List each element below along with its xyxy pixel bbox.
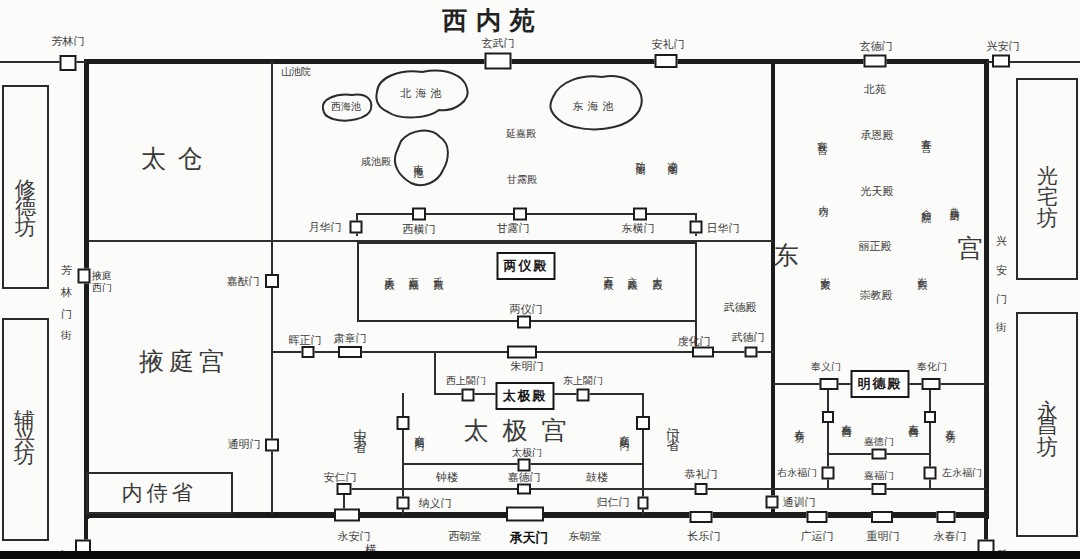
label-wudedian: 武德殿 <box>724 302 757 313</box>
wall-east-palace-west <box>771 59 775 514</box>
label-gongchenge: 功臣阁 <box>635 153 645 159</box>
label-zuoyongfumen: 左永福门 <box>942 468 982 478</box>
label-qianhuamen: 虔化门 <box>678 336 711 347</box>
label-nanhaichi: 南海池 <box>413 156 423 162</box>
gate-rihuamen <box>690 221 703 234</box>
gate-chengtianmen <box>506 507 544 522</box>
label-yiqiugong: 宜秋宫 <box>817 132 827 138</box>
label-anrenmen: 安仁门 <box>324 472 357 483</box>
label-anlimen: 安礼门 <box>652 39 685 50</box>
label-jiademen-east: 嘉德门 <box>864 437 894 447</box>
label-chongmingmen: 重明门 <box>867 531 900 542</box>
label-zuoyanmingmen: 左延明门 <box>619 427 629 435</box>
label-lingyange: 凌烟阁 <box>667 153 677 159</box>
label-zuochunfang: 左春坊 <box>945 421 955 427</box>
label-fengyimen: 奉义门 <box>811 362 841 372</box>
gate-anrenmen <box>337 483 352 495</box>
gate-youjiashanmen <box>822 411 834 423</box>
page-title: 西内苑 <box>442 8 544 33</box>
gate-jiayoumen <box>265 274 279 288</box>
label-xuanwumen: 玄武门 <box>482 38 515 49</box>
label-zuojiashanmen: 左嘉善门 <box>908 416 918 420</box>
label-guangyunmen: 广运门 <box>801 531 834 542</box>
label-xihengmen: 西横门 <box>403 224 436 235</box>
line-taiji-nw-stub <box>434 351 436 395</box>
label-dianshanchu: 典膳厨 <box>949 199 959 205</box>
label-wanchundian: 万春殿 <box>603 269 613 275</box>
gate-jiademen-east <box>872 449 887 460</box>
gate-dongshanggemen <box>577 389 590 402</box>
label-chongrendian: 崇仁殿 <box>917 269 927 275</box>
label-fuxingfang: 辅兴坊 <box>14 393 35 444</box>
label-youchunfang: 右春坊 <box>794 421 804 427</box>
label-yonganmen: 永安门 <box>338 531 371 542</box>
gate-yetingximen <box>78 269 91 284</box>
gate-fengyimen <box>820 378 839 390</box>
label-guangtiandian: 光天殿 <box>861 186 894 197</box>
label-chengtianmen: 承天门 <box>510 531 549 544</box>
hall-liangyidian: 两仪殿 <box>497 252 556 280</box>
gate-yonganmen <box>334 509 360 522</box>
label-donggong-gong: 宫 <box>958 236 983 261</box>
gate-zuojiashanmen <box>924 411 936 423</box>
gate-yuehuamen <box>350 221 363 234</box>
gate-xihengmen <box>412 208 426 221</box>
label-dongchaotang: 东朝堂 <box>569 531 602 542</box>
label-xihaichi: 西海池 <box>331 102 361 112</box>
gate-donghengmen <box>633 208 647 221</box>
label-yetingximen: 掖庭西门 <box>92 270 118 294</box>
label-youyanmingmen: 右延明门 <box>414 427 424 435</box>
label-youjiashanmen: 右嘉善门 <box>841 416 851 420</box>
gate-anlimen <box>655 54 678 68</box>
gate-xinganmen <box>992 55 1010 68</box>
label-yongchunmen: 永春门 <box>934 531 967 542</box>
label-chongwendian: 崇文殿 <box>820 269 830 275</box>
label-donghaichi: 东海池 <box>573 101 618 112</box>
gate-nayimen <box>397 497 410 510</box>
label-yanjiadian: 延嘉殿 <box>506 129 536 139</box>
gate-zhumingmen <box>507 346 537 359</box>
label-tongmingmen: 通明门 <box>228 439 261 450</box>
label-ganludian: 甘露殿 <box>507 175 537 185</box>
label-beihaichi: 北海池 <box>401 88 446 99</box>
wall-west <box>84 59 89 519</box>
gate-youyongfumen <box>822 467 835 480</box>
gate-suzhangmen <box>338 346 362 358</box>
wall-north <box>84 59 988 64</box>
label-shanchiyuan: 山池院 <box>281 67 311 77</box>
label-ganlumen: 甘露门 <box>497 223 530 234</box>
label-zhongshusheng: 中书省 <box>354 418 367 436</box>
gate-gonglimen <box>695 483 708 495</box>
label-wudemen: 武德门 <box>732 332 765 343</box>
gate-changlemen <box>690 511 713 523</box>
label-jiafumen: 嘉福门 <box>864 471 894 481</box>
label-fenghuamen: 奉化门 <box>917 362 947 372</box>
hall-taijidian: 太极殿 <box>496 382 555 410</box>
label-youyongfumen: 右永福门 <box>777 468 817 478</box>
label-lizhengdian-east: 丽正殿 <box>859 241 892 252</box>
gate-huizhengmen <box>302 346 315 358</box>
gate-tongxunmen <box>766 496 779 509</box>
label-donggong-dong: 东 <box>774 243 799 268</box>
label-yichungong: 宜春宫 <box>921 130 931 136</box>
label-yetinggong: 掖庭宫 <box>139 349 229 374</box>
bottom-edge-bar <box>0 551 1080 559</box>
gate-xishanggemen <box>462 389 475 402</box>
label-xuandemen: 玄德门 <box>860 41 893 52</box>
label-yuehuamen: 月华门 <box>309 222 342 233</box>
label-xinganmen: 兴安门 <box>987 41 1020 52</box>
gate-tongmingmen <box>265 439 279 452</box>
label-nayimen: 纳义门 <box>419 498 452 509</box>
label-taijimen: 太极门 <box>512 448 542 458</box>
label-tongxunmen: 通训门 <box>783 497 816 508</box>
label-xinganmen-street: 兴安门街 <box>996 226 1007 342</box>
label-taicang: 太仓 <box>141 146 215 171</box>
label-xiudefang: 修德坊 <box>15 162 36 216</box>
label-beiyuan: 北苑 <box>864 84 886 95</box>
gate-ganlumen <box>513 208 527 221</box>
label-yongchangfang: 永昌坊 <box>1037 382 1058 436</box>
label-baifudian: 百福殿 <box>408 269 418 275</box>
label-donghengmen: 东横门 <box>622 223 655 234</box>
label-rihuamen: 日华门 <box>707 223 740 234</box>
label-dajidian: 大吉殿 <box>652 269 662 275</box>
label-menxiasheng: 门下省 <box>667 416 680 434</box>
palace-map: 西内苑 芳林门 玄武门 安礼门 玄德门 兴安门 修德坊 辅兴坊 芳林门街 安福门… <box>0 0 1080 559</box>
label-xianchidian: 咸池殿 <box>361 157 391 167</box>
label-chengqingdian: 承庆殿 <box>384 269 394 275</box>
label-fanglinmen: 芳林门 <box>52 36 85 47</box>
hall-mingdedian: 明德殿 <box>851 370 910 398</box>
gate-yongchunmen <box>937 511 956 523</box>
gate-xuandemen <box>864 55 887 68</box>
gate-chongmingmen <box>871 511 893 523</box>
gate-youyanmingmen <box>397 416 410 430</box>
label-suzhangmen: 肃章门 <box>334 333 367 344</box>
label-gulou: 鼓楼 <box>586 472 608 483</box>
gate-guirenmen <box>638 497 649 510</box>
label-neifang: 内坊 <box>818 197 828 201</box>
label-guangzhaifang: 光宅坊 <box>1037 148 1058 211</box>
line-jiademen-row <box>338 488 986 490</box>
gate-guangyunmen <box>807 511 828 523</box>
label-qianqiudian: 千秋殿 <box>433 269 443 275</box>
gate-wudemen <box>745 347 758 358</box>
label-taijigong: 太极宫 <box>464 418 581 443</box>
gate-qianhuamen <box>692 347 714 358</box>
label-zhonglou: 钟楼 <box>436 472 458 483</box>
label-guirenmen: 归仁门 <box>597 497 630 508</box>
gate-zuoyanmingmen <box>636 416 650 430</box>
gate-zuoyongfumen <box>924 467 937 480</box>
gate-jiafumen <box>872 483 887 495</box>
label-zhumingmen: 朱明门 <box>511 361 544 372</box>
wall-east <box>984 59 989 519</box>
label-huizhengmen: 晖正门 <box>289 335 322 346</box>
label-chengendian: 承恩殿 <box>861 130 894 141</box>
label-changlemen: 长乐门 <box>688 531 721 542</box>
gate-liangyimen <box>517 316 531 329</box>
label-jiademen-west: 嘉德门 <box>508 472 541 483</box>
label-dongshanggemen: 东上閤门 <box>563 376 603 386</box>
label-gonglimen: 恭礼门 <box>685 469 718 480</box>
gate-fanglinmen <box>60 55 77 71</box>
label-xichaotang: 西朝堂 <box>449 531 482 542</box>
label-lizhengdian: 立政殿 <box>627 269 637 275</box>
gate-jiademen-west <box>517 484 531 495</box>
label-fanglinmen-street: 芳林门街 <box>61 255 72 343</box>
label-neishisheng: 内侍省 <box>122 483 197 504</box>
gate-xuanwumen <box>485 53 512 70</box>
label-xishanggemen: 西上閤门 <box>446 376 486 386</box>
label-chongjiaodian: 崇教殿 <box>860 290 893 301</box>
label-jiayoumen: 嘉猷门 <box>227 276 260 287</box>
label-mingfuyuan: 命妇院 <box>921 201 931 207</box>
label-liangyimen: 两仪门 <box>510 304 543 315</box>
gate-fenghuamen <box>922 378 941 390</box>
